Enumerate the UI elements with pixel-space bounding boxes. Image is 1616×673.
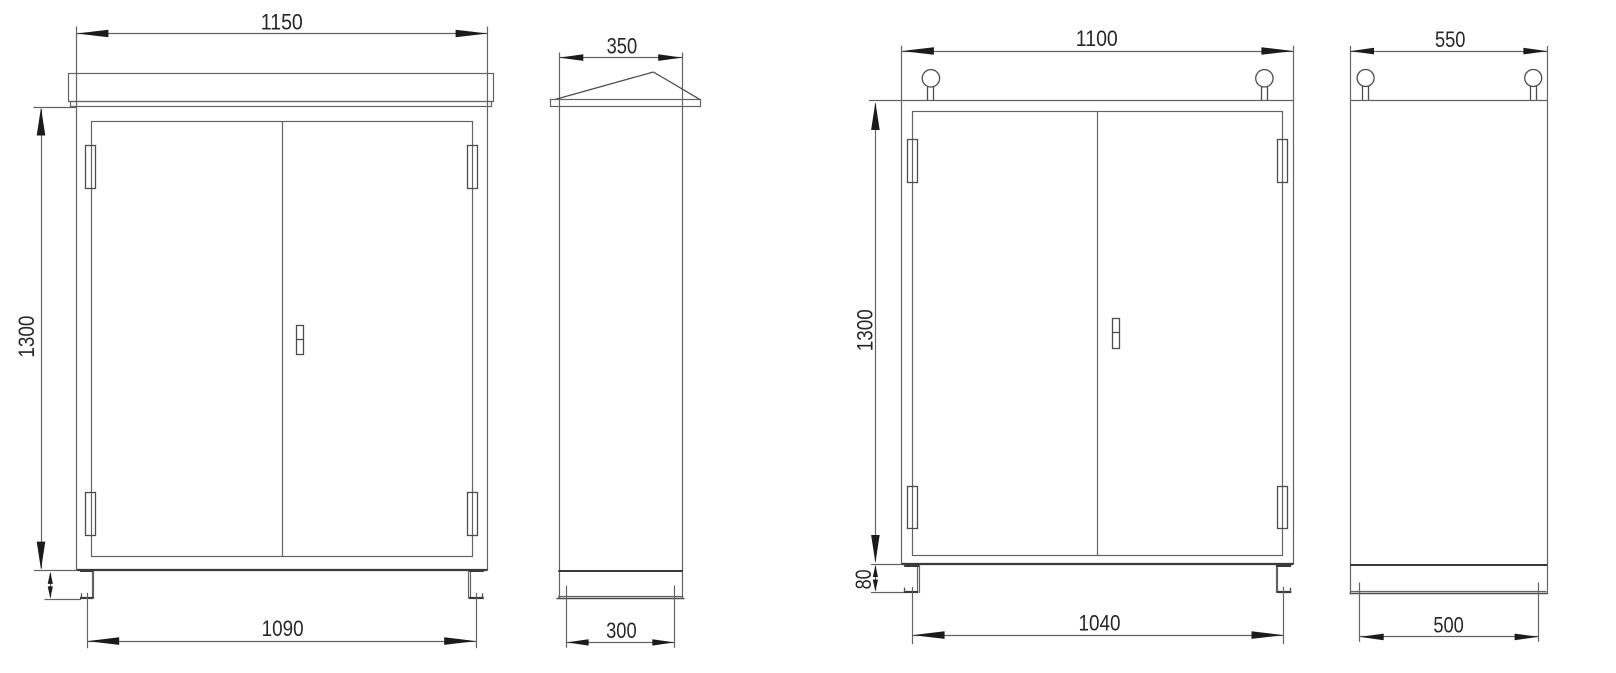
svg-text:1090: 1090 — [262, 616, 304, 641]
svg-text:550: 550 — [1435, 27, 1466, 52]
svg-text:1100: 1100 — [1076, 26, 1118, 51]
svg-text:350: 350 — [607, 34, 638, 59]
svg-text:1300: 1300 — [14, 316, 39, 358]
svg-text:1150: 1150 — [261, 10, 303, 35]
svg-text:500: 500 — [1433, 613, 1464, 638]
svg-text:80: 80 — [851, 569, 876, 589]
svg-text:300: 300 — [606, 618, 637, 643]
svg-text:1040: 1040 — [1079, 611, 1121, 636]
svg-text:1300: 1300 — [852, 309, 877, 351]
